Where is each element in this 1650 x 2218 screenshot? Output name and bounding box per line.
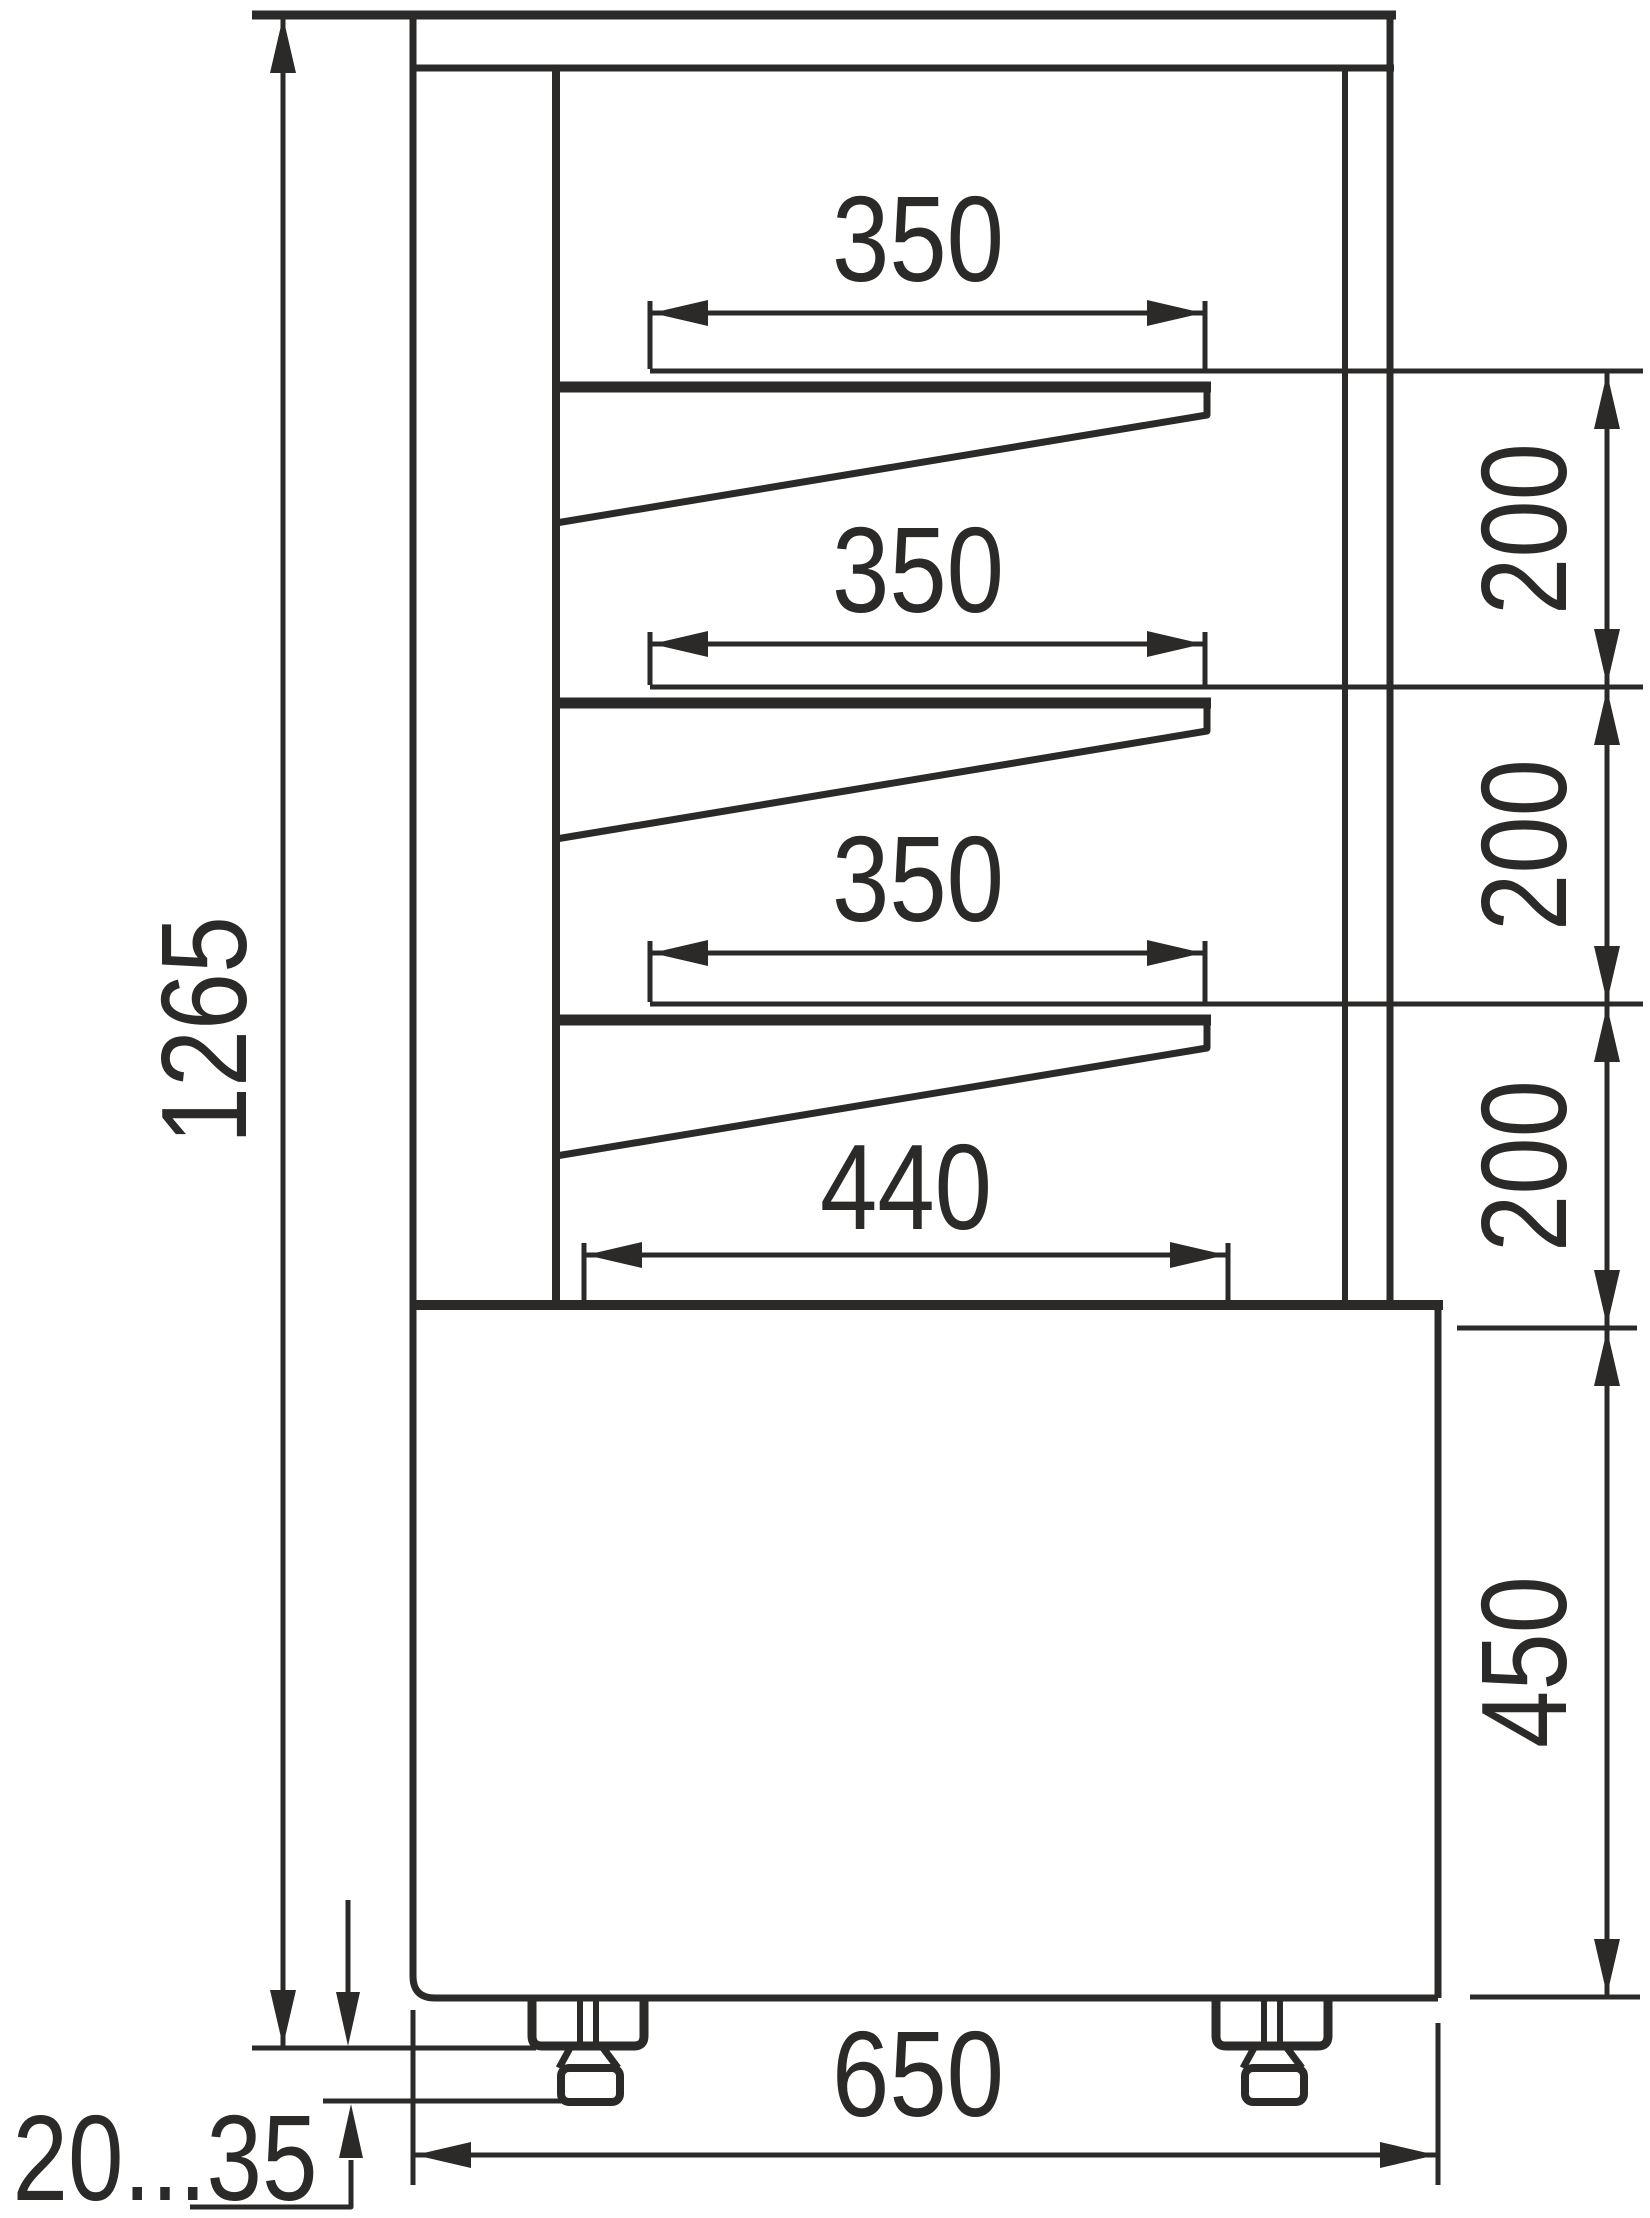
arrow-350-1-r xyxy=(1147,300,1203,326)
arrow-foot-up xyxy=(339,2104,363,2158)
label-350-1: 350 xyxy=(832,171,1004,307)
technical-drawing: 350 350 350 440 650 1265 200 200 200 450… xyxy=(0,0,1650,2218)
arrow-440-l xyxy=(586,1242,642,1268)
arrow-350-2-r xyxy=(1147,631,1203,657)
arrow-1265-top xyxy=(270,17,296,73)
arrow-650-r xyxy=(1380,2142,1436,2168)
arrow-350-3-l xyxy=(652,940,708,966)
label-350-2: 350 xyxy=(832,502,1004,638)
arrow-450-bot xyxy=(1594,1939,1620,1995)
arrow-350-2-l xyxy=(652,631,708,657)
arrow-gap1-top xyxy=(1594,373,1620,429)
arrow-440-r xyxy=(1170,1242,1226,1268)
arrow-gap1-bot xyxy=(1594,629,1620,685)
arrow-350-3-r xyxy=(1147,940,1203,966)
label-200-3: 200 xyxy=(1456,1080,1592,1252)
arrow-450-top xyxy=(1594,1330,1620,1386)
label-350-3: 350 xyxy=(832,811,1004,947)
arrow-1265-bottom xyxy=(270,1990,296,2046)
drawing-root: 350 350 350 440 650 1265 200 200 200 450… xyxy=(13,11,1644,2218)
label-650: 650 xyxy=(832,2006,1004,2142)
arrow-650-l xyxy=(415,2142,471,2168)
dimension-labels: 350 350 350 440 650 1265 200 200 200 450… xyxy=(13,171,1593,2218)
arrow-gap2-bot xyxy=(1594,946,1620,1002)
foot-left-pad xyxy=(561,2068,620,2102)
drawing-page: 350 350 350 440 650 1265 200 200 200 450… xyxy=(0,0,1650,2218)
label-200-1: 200 xyxy=(1456,443,1592,615)
dimension-lines xyxy=(190,17,1640,2207)
label-450: 450 xyxy=(1456,1576,1592,1748)
foot-left-bracket xyxy=(532,1998,644,2046)
foot-right-pad xyxy=(1245,2068,1304,2102)
arrow-gap3-top xyxy=(1594,1006,1620,1062)
arrow-gap3-bot xyxy=(1594,1270,1620,1326)
foot-left xyxy=(532,1998,644,2102)
label-440: 440 xyxy=(820,1119,992,1255)
arrow-foot-down xyxy=(336,1992,360,2046)
label-200-2: 200 xyxy=(1456,759,1592,931)
foot-right xyxy=(1216,1998,1328,2102)
label-foot-range: 20...35 xyxy=(13,2090,318,2218)
foot-right-bracket xyxy=(1216,1998,1328,2046)
label-1265: 1265 xyxy=(136,916,272,1144)
arrow-gap2-top xyxy=(1594,689,1620,745)
arrow-350-1-l xyxy=(652,300,708,326)
